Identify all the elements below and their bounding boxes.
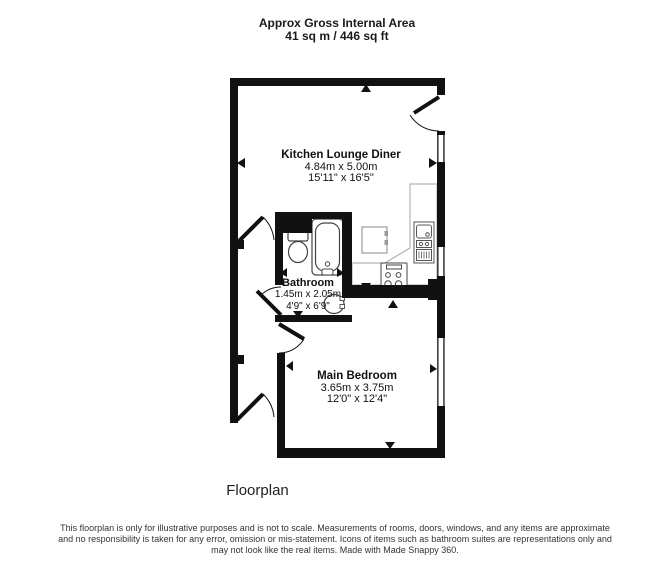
washing-machine-icon	[362, 227, 388, 253]
floorplan-caption: Floorplan	[190, 482, 325, 499]
room-imperial-dims: 12'0" x 12'4"	[257, 394, 457, 406]
room-imperial-dims: 15'11" x 16'5"	[241, 173, 441, 185]
wall-bedroom-bottom	[277, 448, 445, 458]
door-swing-icon	[279, 324, 304, 353]
measurement-arrow-icon	[388, 300, 398, 308]
wall-stub	[238, 355, 244, 364]
kitchen-sink-icon	[414, 222, 434, 263]
disclaimer-line-1: This floorplan is only for illustrative …	[60, 523, 610, 533]
wall-left	[230, 78, 238, 423]
room-name: Kitchen Lounge Diner	[241, 150, 441, 162]
floorplan-page: { "header": { "title_line1": "Approx Gro…	[0, 0, 670, 570]
disclaimer-line-3: may not look like the real items. Made w…	[211, 545, 459, 555]
room-label-bathroom: Bathroom 1.45m x 2.05m 4'9" x 6'9"	[233, 277, 383, 313]
wall-bathroom-left	[275, 212, 283, 285]
door-swing-icon	[410, 97, 439, 131]
wall-bathroom-bottom	[275, 315, 352, 322]
door-swing-icon	[237, 217, 274, 243]
room-label-bedroom: Main Bedroom 3.65m x 3.75m 12'0" x 12'4"	[257, 371, 457, 406]
room-metric-dims: 1.45m x 2.05m	[233, 289, 383, 301]
room-imperial-dims: 4'9" x 6'9"	[233, 301, 383, 313]
bath-icon	[312, 219, 343, 275]
room-name: Bathroom	[233, 277, 383, 289]
measurement-arrow-icon	[385, 442, 395, 449]
wall-right	[437, 78, 445, 95]
disclaimer-line-2: and no responsibility is taken for any e…	[58, 534, 612, 544]
room-label-kitchen: Kitchen Lounge Diner 4.84m x 5.00m 15'11…	[241, 150, 441, 185]
wall-top	[230, 78, 445, 86]
room-name: Main Bedroom	[257, 371, 457, 383]
title-line-2: 41 sq m / 446 sq ft	[285, 29, 388, 43]
disclaimer-text: This floorplan is only for illustrative …	[35, 523, 635, 556]
measurement-arrow-icon	[286, 361, 293, 371]
window-icon	[437, 246, 445, 277]
gross-internal-area-title: Approx Gross Internal Area 41 sq m / 446…	[187, 17, 487, 42]
toilet-icon	[288, 232, 308, 263]
